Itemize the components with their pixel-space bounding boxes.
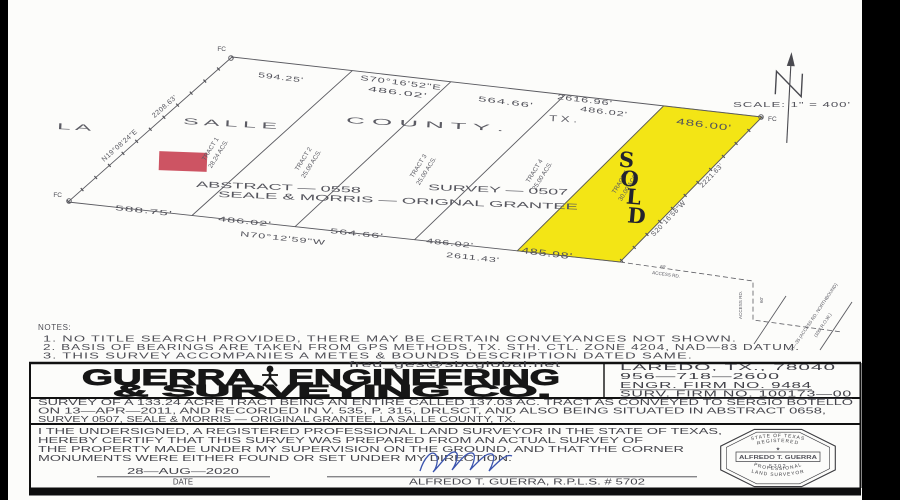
cert-line-4: MONUMENTS WERE EITHER FOUND OR SET UNDER… [38, 454, 512, 463]
county-text-tx: T X . [549, 113, 577, 124]
access-vertical-dim: 60' [759, 297, 764, 303]
cert-line-2: HEREBY CERTIFY THAT THIS SURVEY WAS PREP… [38, 436, 643, 445]
seal-star-icon: ★ [776, 447, 781, 453]
cert-line-1: I THE UNDERSIGNED, A REGISTERED PROFESSI… [38, 427, 722, 436]
fc-label: FC [768, 116, 777, 123]
cert-line-3: THE PROPERTY MADE UNDER MY SUPERVISION O… [38, 445, 685, 454]
access-vertical-name: ACCESS RD. [738, 291, 743, 319]
scale-label: SCALE: 1" = 400' [733, 102, 851, 109]
description-line-3: SURVEY 0507, SEALE & MORRIS — ORIGINAL G… [38, 415, 516, 424]
notes-title: NOTES: [38, 323, 71, 332]
scanned-survey-plat-page: { "colors": { "sold_yellow": "#f3e515", … [0, 0, 900, 500]
sold-letter: D [626, 202, 646, 228]
date-label: DATE [173, 478, 193, 487]
plat-canvas: TRACT 5 30.00 ACS. FC FC FC L A S A L L … [0, 0, 900, 500]
right-scan-bar [862, 0, 900, 500]
access-dim-label: 60' [660, 264, 667, 270]
date-value: 28—AUG—2020 [127, 467, 240, 476]
fc-label: FC [217, 46, 226, 53]
title-block-border-bottom [29, 488, 861, 496]
surveyor-name-line: ALFREDO T. GUERRA, R.P.L.S. # 5702 [409, 478, 645, 487]
county-text-la: L A [57, 121, 92, 133]
seal-name-text: ALFREDO T. GUERRA [739, 455, 817, 461]
left-scan-bar [0, 0, 8, 500]
fc-label: FC [53, 192, 62, 199]
red-location-marker [159, 151, 208, 172]
